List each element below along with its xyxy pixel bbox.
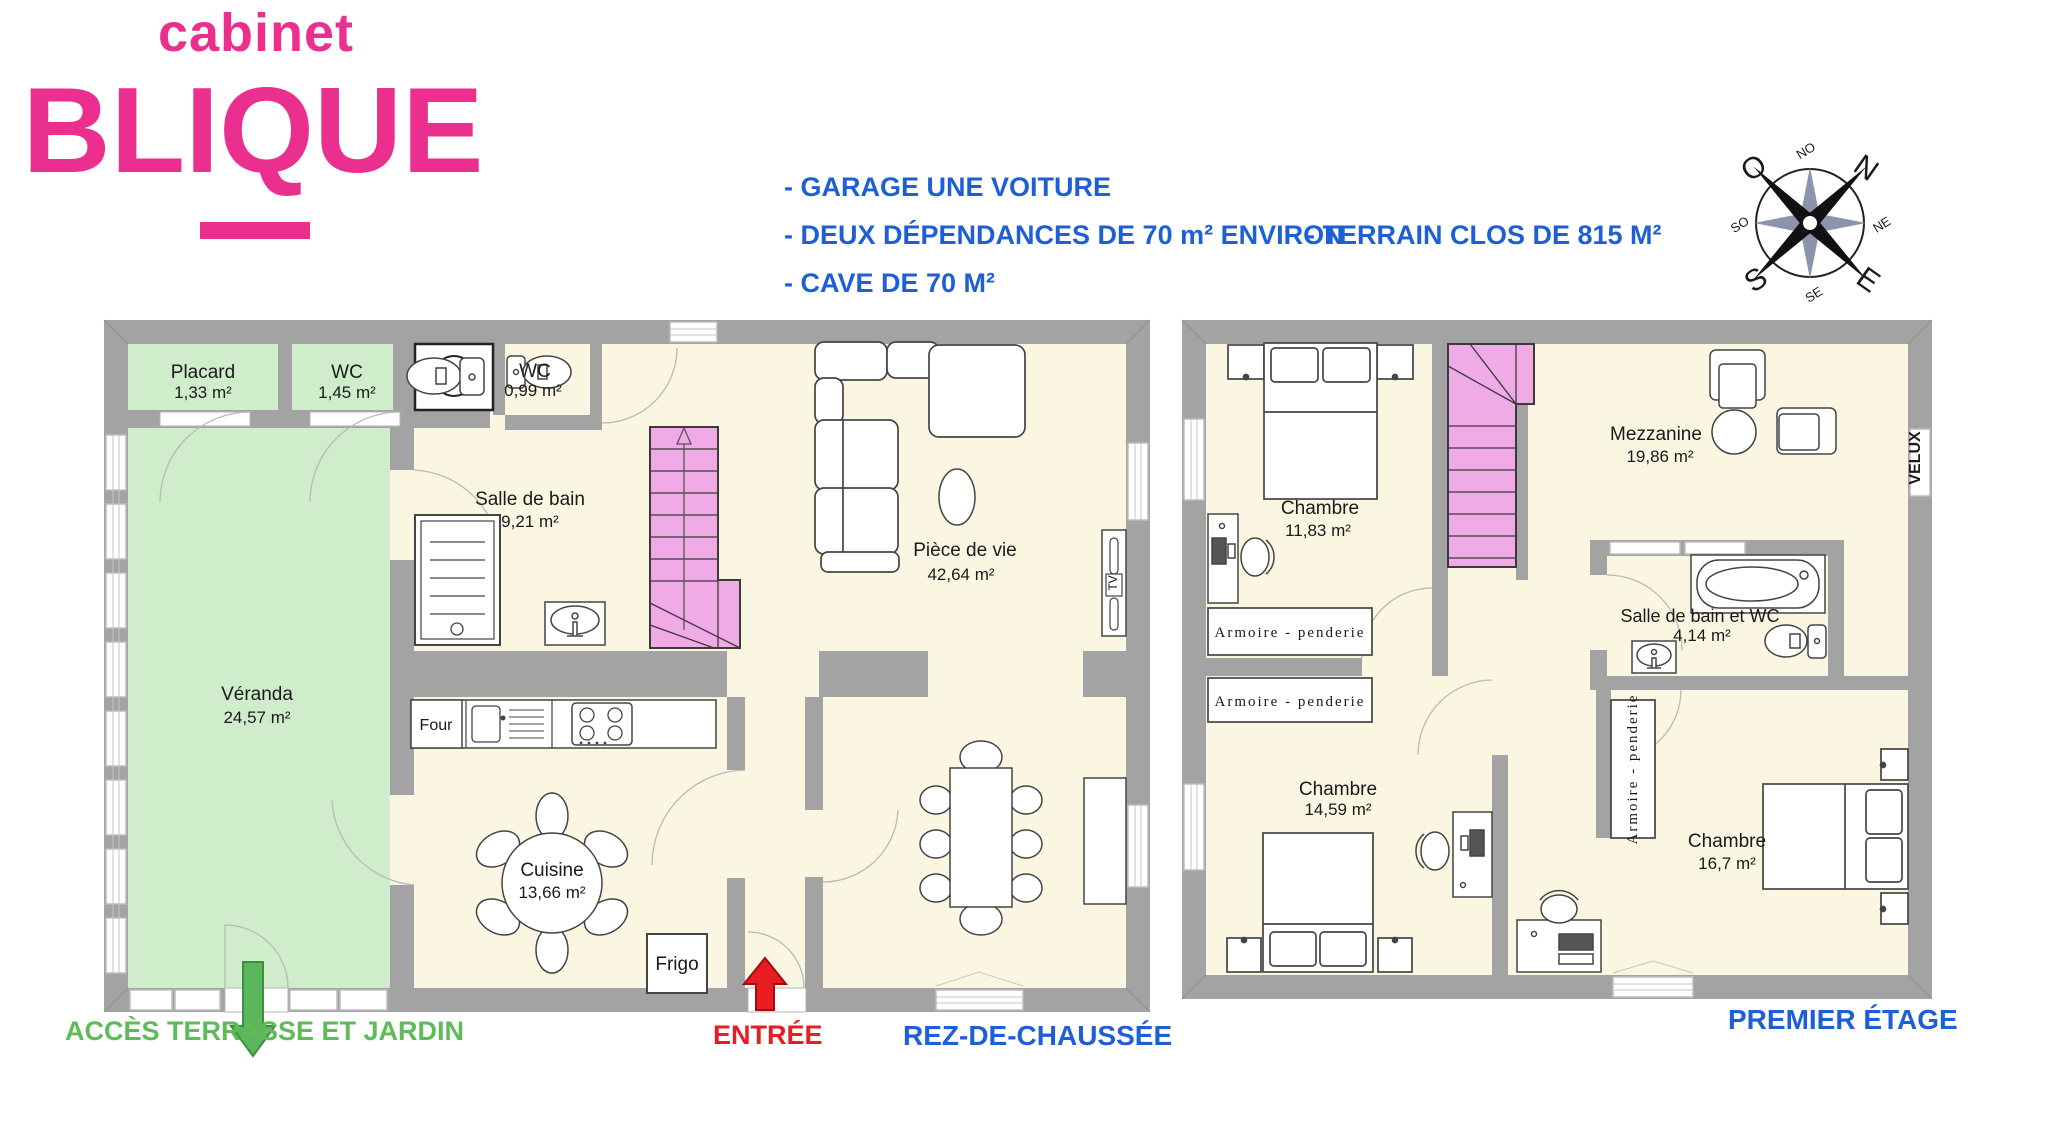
feature-garage: - GARAGE UNE VOITURE — [784, 172, 1111, 203]
room-area-chambre2: 14,59 m² — [1304, 800, 1371, 819]
toilet-icon-first-floor — [1765, 625, 1826, 658]
first-floor-plan: Chambre 11,83 m² Mezzanine 19,86 m² Sall… — [1182, 320, 1932, 999]
room-area-chambre3: 16,7 m² — [1698, 854, 1756, 873]
first-floor-title: PREMIER ÉTAGE — [1728, 1004, 1958, 1036]
room-label-mezzanine: Mezzanine — [1610, 424, 1702, 445]
ground-floor-plan: Placard 1,33 m² WC 1,45 m² WC 0,99 m² Sa… — [104, 320, 1150, 1012]
room-area-wc1: 1,45 m² — [318, 383, 376, 402]
compass-so: SO — [1728, 213, 1752, 236]
logo-underline — [200, 222, 310, 239]
room-label-chambre3: Chambre — [1688, 831, 1766, 852]
compass-se: SE — [1802, 283, 1825, 305]
room-area-cuisine: 13,66 m² — [518, 883, 585, 902]
shower-icon — [415, 515, 500, 645]
compass-rose-icon: N O S E NO NE SE SO — [1724, 137, 1896, 309]
label-velux: VELUX — [1907, 431, 1924, 485]
entry-label: ENTRÉE — [713, 1020, 823, 1051]
compass-ne: NE — [1870, 213, 1894, 235]
label-frigo: Frigo — [655, 954, 698, 975]
room-area-piece-de-vie: 42,64 m² — [927, 565, 994, 584]
room-label-salle-de-bain-wc: Salle de bain et WC — [1620, 606, 1779, 626]
logo-cabinet: cabinet — [96, 2, 416, 64]
logo-blique: BLIQUE — [18, 66, 488, 194]
sink-icon-bathroom — [545, 602, 605, 645]
room-area-salle-de-bain: 9,21 m² — [501, 512, 559, 531]
compass-no: NO — [1793, 139, 1817, 162]
terrace-access-label: ACCÈS TERRASSE ET JARDIN — [65, 1016, 464, 1047]
room-area-placard: 1,33 m² — [174, 383, 232, 402]
room-area-veranda: 24,57 m² — [223, 708, 290, 727]
room-area-salle-de-bain-wc: 4,14 m² — [1673, 626, 1731, 645]
room-label-placard: Placard — [171, 362, 235, 383]
ground-floor-title: REZ-DE-CHAUSSÉE — [903, 1020, 1172, 1052]
room-label-cuisine: Cuisine — [520, 860, 583, 881]
label-four: Four — [420, 717, 454, 734]
room-label-veranda: Véranda — [221, 684, 293, 705]
feature-cave: - CAVE DE 70 M² — [784, 268, 995, 299]
sink-icon-first-floor — [1632, 641, 1676, 673]
coffee-table-icon — [939, 469, 975, 525]
room-label-wc1: WC — [331, 362, 363, 383]
feature-terrain: - TERRAIN CLOS DE 815 M² — [1306, 220, 1662, 251]
room-label-wc2: WC — [519, 361, 551, 382]
room-area-mezzanine: 19,86 m² — [1626, 447, 1693, 466]
room-area-wc2: 0,99 m² — [504, 381, 562, 400]
room-label-chambre2: Chambre — [1299, 779, 1377, 800]
room-label-salle-de-bain: Salle de bain — [475, 489, 585, 510]
room-area-chambre1: 11,83 m² — [1285, 521, 1351, 540]
bathtub-icon — [1691, 555, 1825, 613]
feature-dependances: - DEUX DÉPENDANCES DE 70 m² ENVIRON — [784, 220, 1344, 251]
label-armoire-2: Armoire - penderie — [1215, 694, 1366, 710]
kitchen-counter — [411, 700, 716, 748]
label-armoire-3: Armoire - penderie — [1625, 694, 1641, 845]
toilet-icon-wc1 — [407, 358, 484, 395]
sideboard-icon — [1084, 778, 1126, 904]
label-armoire-1: Armoire - penderie — [1215, 625, 1366, 641]
room-label-piece-de-vie: Pièce de vie — [913, 540, 1017, 561]
label-tv: TV — [1106, 575, 1120, 590]
room-label-chambre1: Chambre — [1281, 498, 1359, 519]
